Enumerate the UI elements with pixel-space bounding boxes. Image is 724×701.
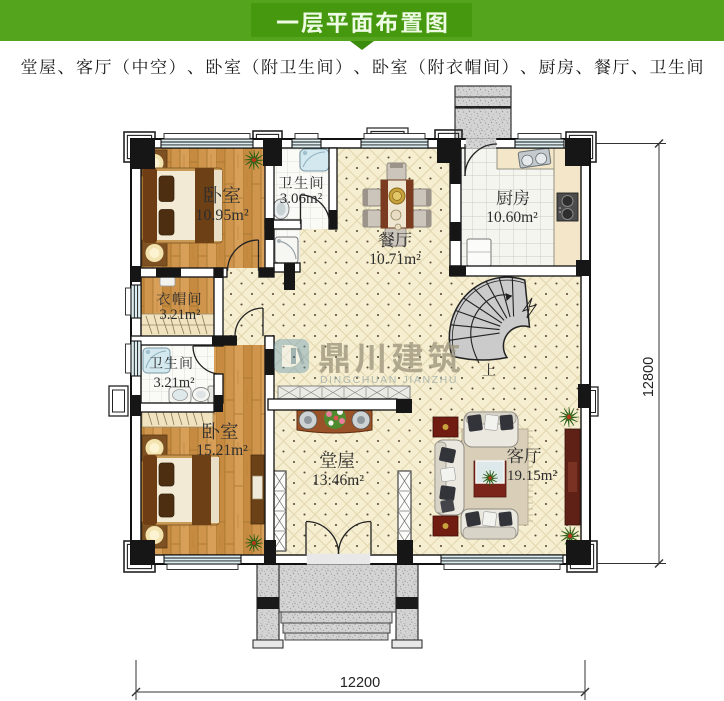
svg-text:12200: 12200 xyxy=(340,675,380,691)
svg-text:19.15m²: 19.15m² xyxy=(507,468,557,484)
svg-text:15.21m²: 15.21m² xyxy=(196,442,248,459)
svg-text:DINGCHUAN JIANZHU: DINGCHUAN JIANZHU xyxy=(320,374,458,386)
svg-text:3.21m²: 3.21m² xyxy=(159,307,201,323)
svg-text:10.95m²: 10.95m² xyxy=(195,207,248,224)
svg-text:10.71m²: 10.71m² xyxy=(369,251,421,268)
svg-text:3.21m²: 3.21m² xyxy=(153,375,195,391)
svg-text:10.60m²: 10.60m² xyxy=(486,209,538,226)
svg-text:12800: 12800 xyxy=(641,357,657,397)
svg-text:13:46m²: 13:46m² xyxy=(312,472,364,489)
svg-text:3.06m²: 3.06m² xyxy=(280,191,323,207)
